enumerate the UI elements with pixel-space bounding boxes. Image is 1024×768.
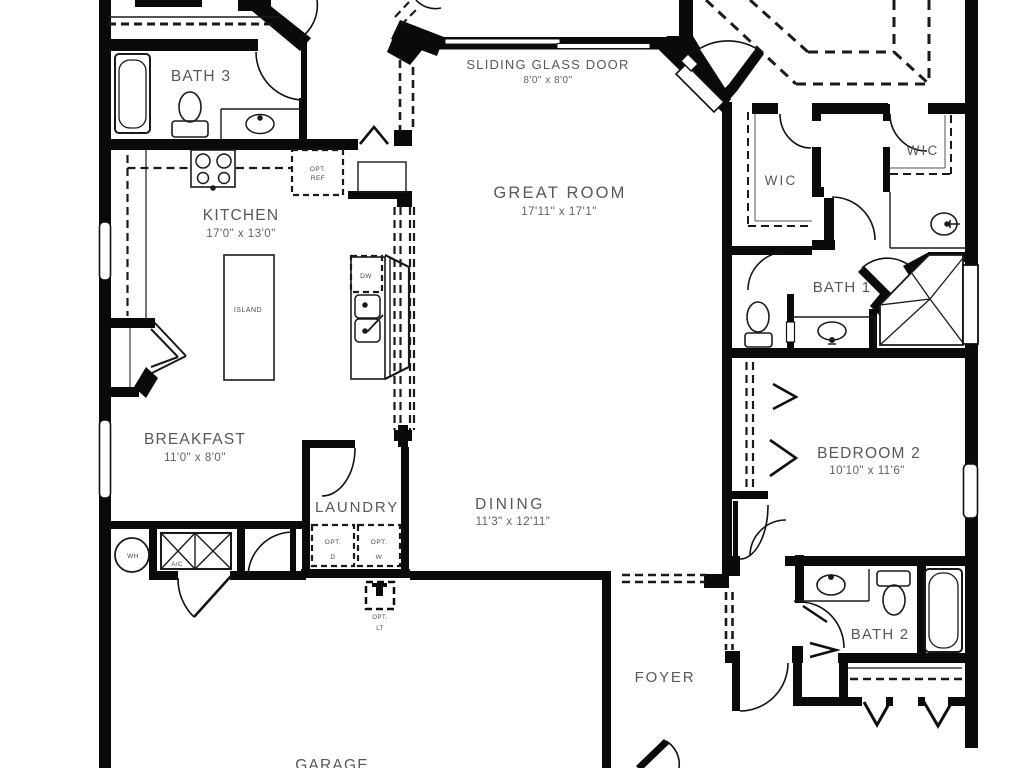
svg-text:GARAGE: GARAGE <box>295 757 369 768</box>
svg-text:A/C: A/C <box>171 562 183 568</box>
svg-text:10'10" x 11'6": 10'10" x 11'6" <box>829 465 905 477</box>
svg-text:DINING: DINING <box>475 496 545 513</box>
svg-text:OPT.: OPT. <box>372 615 387 621</box>
svg-text:17'0" x 13'0": 17'0" x 13'0" <box>206 228 276 240</box>
svg-text:DW: DW <box>360 273 372 280</box>
svg-text:OPT.: OPT. <box>310 166 326 173</box>
svg-text:D: D <box>330 554 335 561</box>
svg-text:BATH 1: BATH 1 <box>813 279 872 296</box>
svg-text:GREAT ROOM: GREAT ROOM <box>493 184 626 202</box>
svg-text:17'11" x 17'1": 17'11" x 17'1" <box>521 206 597 218</box>
svg-text:FOYER: FOYER <box>635 669 696 686</box>
svg-text:WIC: WIC <box>765 173 798 188</box>
svg-text:11'3" x 12'11": 11'3" x 12'11" <box>476 516 551 528</box>
svg-text:ISLAND: ISLAND <box>234 307 262 314</box>
svg-text:BEDROOM 2: BEDROOM 2 <box>817 445 921 462</box>
svg-text:BATH 2: BATH 2 <box>851 626 910 643</box>
svg-text:OPT.: OPT. <box>325 539 341 546</box>
svg-text:LT: LT <box>376 626 384 632</box>
svg-text:W: W <box>376 554 383 561</box>
svg-text:BATH 3: BATH 3 <box>171 68 231 85</box>
svg-text:11'0" x 8'0": 11'0" x 8'0" <box>164 452 226 464</box>
svg-text:REF: REF <box>311 175 326 182</box>
svg-text:8'0" x 8'0": 8'0" x 8'0" <box>523 75 572 86</box>
svg-text:SLIDING GLASS DOOR: SLIDING GLASS DOOR <box>466 57 629 72</box>
svg-text:WIC: WIC <box>907 143 940 158</box>
svg-text:OPT.: OPT. <box>371 539 387 546</box>
svg-text:BREAKFAST: BREAKFAST <box>144 431 246 448</box>
svg-text:KITCHEN: KITCHEN <box>203 207 279 224</box>
svg-text:LAUNDRY: LAUNDRY <box>315 499 399 516</box>
svg-text:WH: WH <box>127 553 139 560</box>
